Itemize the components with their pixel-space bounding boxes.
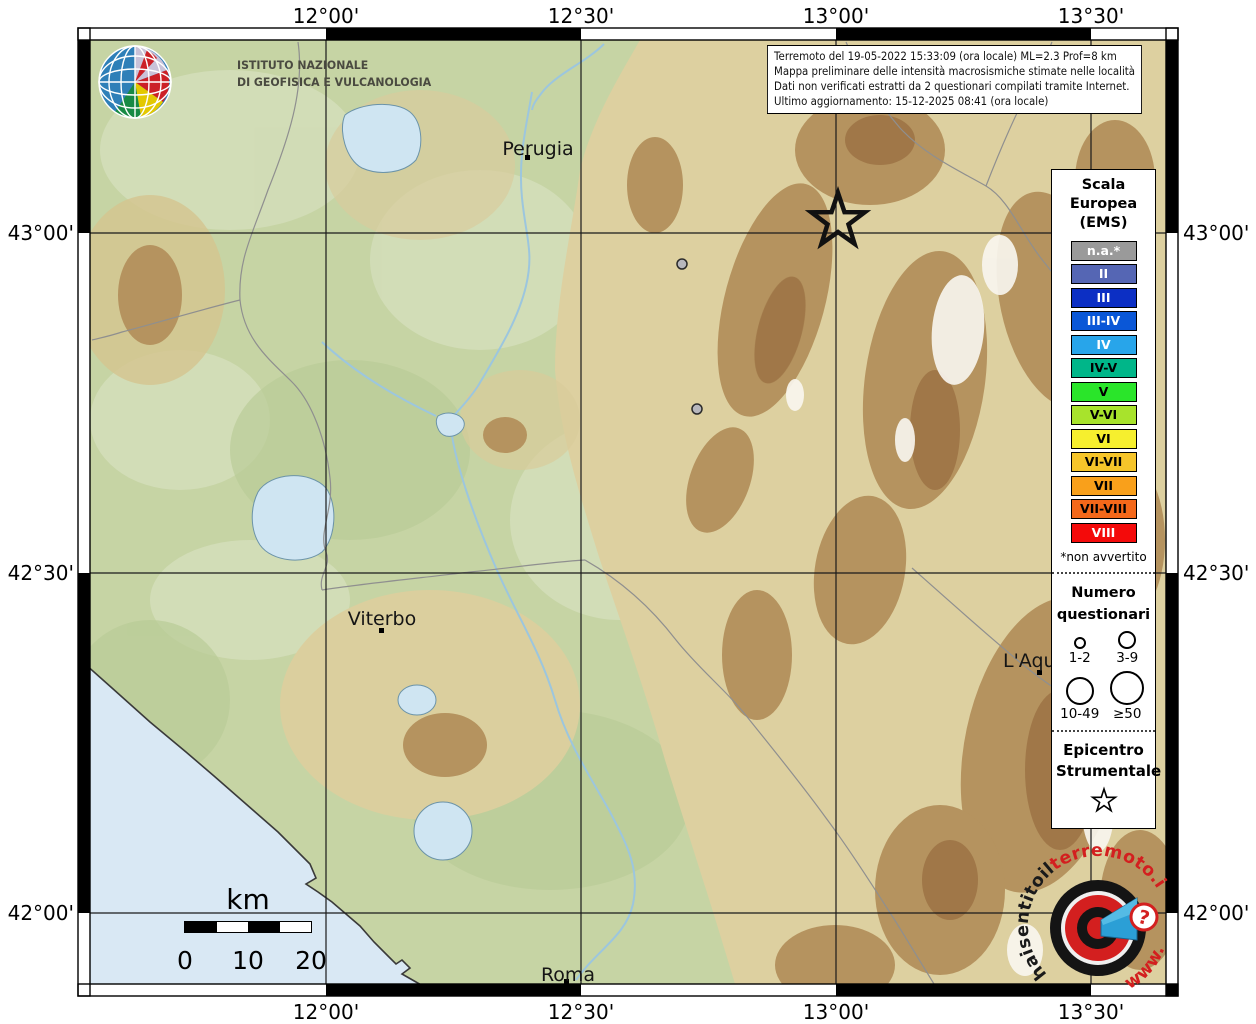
map-scale-bar: km 0 10 20 (168, 886, 328, 935)
size-circle-50plus (1110, 671, 1144, 705)
legend-swatch-v: V (1071, 382, 1137, 402)
axis-label-top-lon0: 12°00' (293, 4, 359, 28)
axis-label-right-lat1: 42°30' (1183, 561, 1249, 585)
ingv-logo-icon (95, 42, 179, 122)
questionnaire-size-key: 1-2 3-9 10-49 ≥50 (1056, 629, 1151, 722)
legend-swatch-vii: VII (1071, 476, 1137, 496)
size-circle-3-9 (1118, 631, 1136, 649)
legend-swatch-na: n.a.* (1071, 241, 1137, 261)
ingv-logo-text: ISTITUTO NAZIONALE DI GEOFISICA E VULCAN… (237, 57, 431, 90)
city-label-perugia: Perugia (502, 138, 573, 160)
earthquake-info-box: Terremoto del 19-05-2022 15:33:09 (ora l… (767, 45, 1142, 114)
macroseismic-map-page: 12°00' 12°30' 13°00' 13°30' 12°00' 12°30… (0, 0, 1256, 1024)
info-line-data: Dati non verificati estratti da 2 questi… (774, 79, 1135, 94)
legend-swatch-iv-v: IV-V (1071, 358, 1137, 378)
scale-tick-10: 10 (232, 946, 264, 975)
epicenter-legend-star-icon (1087, 786, 1121, 816)
info-line-maptype: Mappa preliminare delle intensità macros… (774, 64, 1135, 79)
scale-unit-label: km (168, 886, 328, 914)
legend-footnote: *non avvertito (1056, 550, 1151, 564)
questionnaire-count-title: Numero questionari (1056, 582, 1151, 627)
size-circle-1-2 (1074, 637, 1086, 649)
ingv-institute-line1: ISTITUTO NAZIONALE (237, 57, 431, 74)
legend-divider-2 (1052, 730, 1155, 732)
axis-label-left-lat2: 42°00' (8, 901, 74, 925)
legend-swatch-vi-vii: VI-VII (1071, 452, 1137, 472)
axis-label-left-lat1: 42°30' (8, 561, 74, 585)
axis-label-top-lon1: 12°30' (548, 4, 614, 28)
logo-question-icon: ? (1131, 904, 1157, 930)
info-line-update: Ultimo aggiornamento: 15-12-2025 08:41 (… (774, 94, 1135, 109)
size-circle-10-49 (1066, 677, 1094, 705)
scale-tick-20: 20 (295, 946, 327, 975)
legend-swatch-v-vi: V-VI (1071, 405, 1137, 425)
legend-panel: Scala Europea (EMS) n.a.* II III III-IV … (1051, 169, 1156, 829)
axis-label-right-lat2: 42°00' (1183, 901, 1249, 925)
legend-swatch-viii: VIII (1071, 523, 1137, 543)
legend-swatch-vi: VI (1071, 429, 1137, 449)
city-label-viterbo: Viterbo (348, 608, 417, 630)
legend-swatch-iii-iv: III-IV (1071, 311, 1137, 331)
ingv-institute-line2: DI GEOFISICA E VULCANOLOGIA (237, 74, 431, 91)
info-line-event: Terremoto del 19-05-2022 15:33:09 (ora l… (774, 49, 1135, 64)
legend-swatch-iv: IV (1071, 335, 1137, 355)
legend-swatch-ii: II (1071, 264, 1137, 284)
axis-label-top-lon2: 13°00' (803, 4, 869, 28)
axis-label-right-lat0: 43°00' (1183, 221, 1249, 245)
haisentitoilterremoto-logo: ? haisentitoilterremoto.it www. (1013, 840, 1188, 1010)
legend-title: Scala Europea (EMS) (1056, 176, 1151, 233)
epicenter-legend-title: Epicentro Strumentale (1056, 740, 1151, 781)
axis-label-bottom-lon1: 12°30' (548, 1000, 614, 1024)
axis-label-bottom-lon0: 12°00' (293, 1000, 359, 1024)
scale-bar-segments (184, 921, 312, 933)
legend-divider-1 (1052, 572, 1155, 574)
legend-swatch-vii-viii: VII-VIII (1071, 499, 1137, 519)
axis-label-left-lat0: 43°00' (8, 221, 74, 245)
city-label-roma: Roma (541, 964, 595, 986)
scale-tick-0: 0 (177, 946, 193, 975)
axis-label-top-lon3: 13°30' (1058, 4, 1124, 28)
axis-label-bottom-lon2: 13°00' (803, 1000, 869, 1024)
legend-swatch-iii: III (1071, 288, 1137, 308)
